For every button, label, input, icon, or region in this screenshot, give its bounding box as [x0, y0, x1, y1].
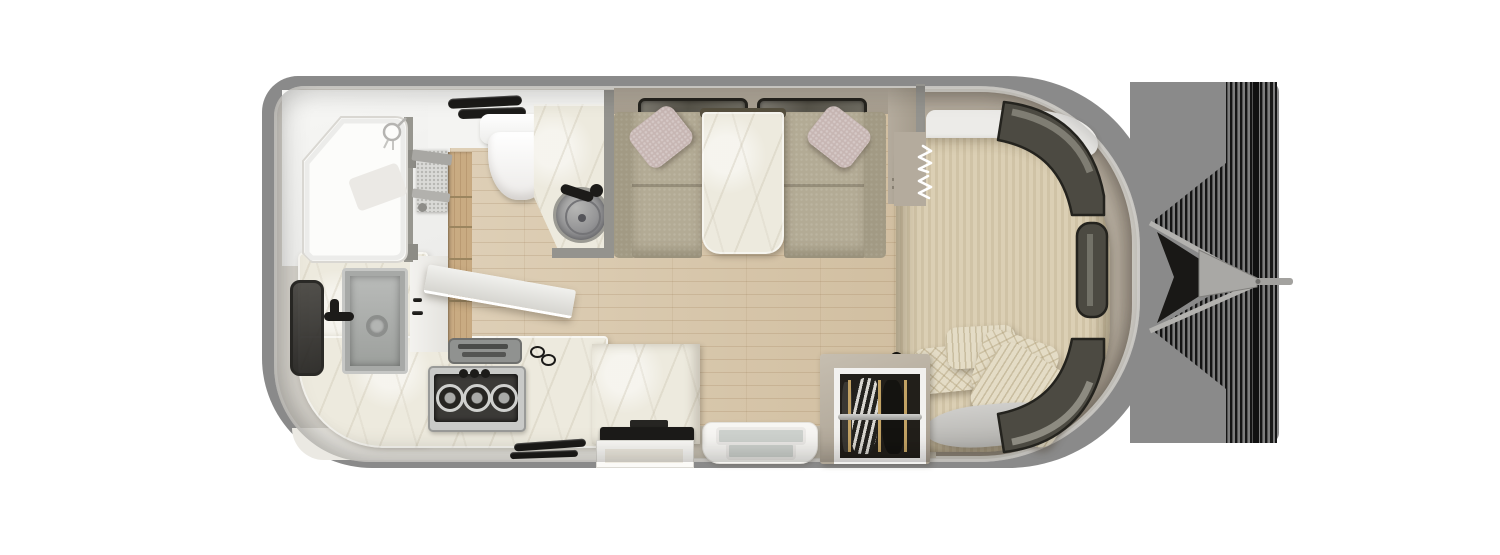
cabinet-shelf-line — [448, 196, 472, 198]
shower-door-knob — [418, 203, 427, 212]
kitchen-side-window — [290, 280, 324, 376]
burner — [436, 384, 464, 412]
clothes-rail — [838, 414, 922, 420]
trailer-floorplan-canvas — [0, 0, 1500, 555]
wardrobe-opening — [834, 368, 926, 464]
burner — [490, 384, 518, 412]
bath-faucet-knob — [590, 184, 603, 197]
burner — [463, 384, 491, 412]
burner-knob — [470, 369, 479, 378]
burner-knob — [481, 369, 490, 378]
tv-drawer-unit — [596, 440, 694, 468]
burner-knob — [459, 369, 468, 378]
tray-slot — [458, 344, 508, 349]
wood-cabinet-column — [448, 152, 472, 352]
vessel-sink-drain — [578, 214, 586, 222]
kitchen-sink-drain — [366, 315, 388, 337]
entry-door — [702, 422, 818, 464]
tray-slot — [462, 352, 506, 357]
bath-dinette-wall — [604, 90, 614, 256]
kitchen-sink — [342, 268, 408, 374]
bath-wall-stub — [552, 248, 614, 258]
tv-drawer-front — [605, 449, 683, 463]
cushion-seam — [784, 184, 866, 187]
cabinet-shelf-line — [448, 226, 472, 228]
kitchen-faucet-spout — [324, 312, 354, 321]
pantry-handle-lower — [412, 311, 423, 315]
cooktop-surface — [434, 374, 518, 422]
divider-post-bottom — [400, 244, 418, 260]
utensil-hook — [541, 354, 556, 366]
cabinet-shelf-line — [448, 258, 472, 260]
pantry-handle-upper — [413, 298, 422, 302]
bed-notch-cover — [894, 132, 926, 206]
trailer-silhouette-hitch-zone — [1130, 82, 1279, 443]
recessed-tray — [448, 338, 522, 364]
cushion-seam — [632, 184, 702, 187]
entry-door-pane — [726, 442, 796, 460]
dining-table — [702, 112, 784, 254]
